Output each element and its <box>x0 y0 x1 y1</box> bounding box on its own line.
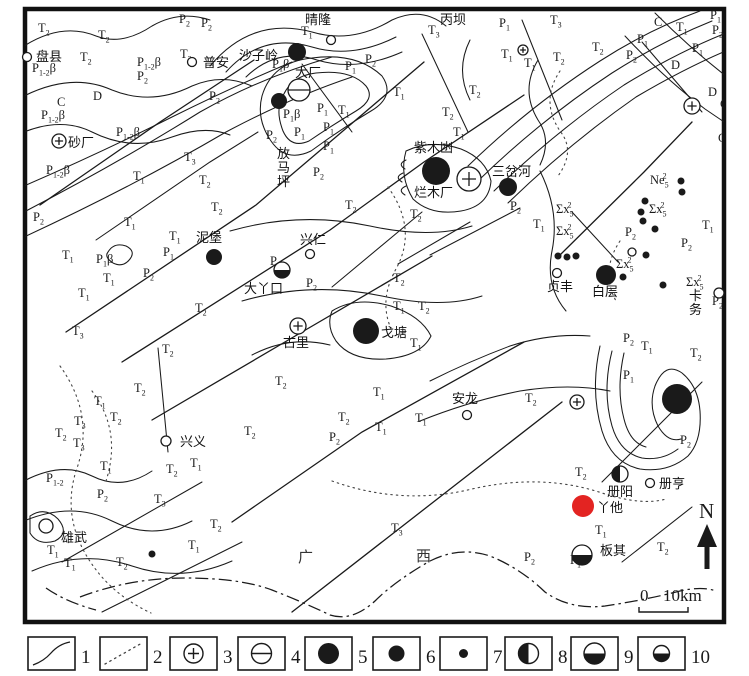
legend-number: 6 <box>426 647 436 668</box>
place-label: 盘县 <box>36 49 62 65</box>
place-label: 丙坝 <box>440 13 466 28</box>
map-canvas: T2T2P2P2T2T2P1-2βP1-2βP2CDP2P1-2βP1-2βT3… <box>0 0 749 676</box>
place-label: 兴仁 <box>300 233 326 248</box>
place-label: 泥堡 <box>196 230 222 246</box>
map-legend: 12345678910 <box>28 637 710 670</box>
town-marker <box>39 519 53 533</box>
place-label: 大丫口 <box>244 282 283 297</box>
gold-deposit-dot <box>679 189 686 196</box>
town-marker <box>327 36 336 45</box>
legend-number: 5 <box>358 647 368 668</box>
place-label: 普安 <box>203 56 229 71</box>
scale-distance-label: 10km <box>663 586 702 605</box>
legend-number: 10 <box>691 647 710 668</box>
geological-map-figure: T2T2P2P2T2T2P1-2βP1-2βP2CDP2P1-2βP1-2βT3… <box>0 0 749 676</box>
province-label-guangxi-guang: 广 <box>298 548 313 566</box>
gold-deposit-dot <box>564 254 571 261</box>
gold-deposit-dot <box>288 43 306 61</box>
deposit-half-left-circle <box>612 466 628 482</box>
open-circle-marker <box>628 248 636 256</box>
mine-symbol-circle-plus <box>52 134 66 148</box>
gold-deposit-dot <box>643 252 650 259</box>
deposit-half-bottom-circle <box>274 262 290 278</box>
strat-unit-label: C <box>654 15 662 29</box>
strat-unit-label: D <box>93 89 102 103</box>
town-marker <box>463 411 472 420</box>
place-label: 戈塘 <box>381 325 407 341</box>
legend-item-9: 9 <box>571 637 634 670</box>
place-label: 大厂 <box>295 66 321 81</box>
strat-unit-label: Σx52 <box>649 201 667 219</box>
mine-symbol-circle-plus <box>290 318 306 334</box>
legend-item-5: 5 <box>305 637 368 670</box>
strat-unit-label: Σx52 <box>556 201 574 219</box>
legend-item-2: 2 <box>100 637 163 670</box>
legend-item-3: 3 <box>170 637 233 670</box>
town-marker <box>188 58 197 67</box>
place-label: 册亨 <box>659 476 685 492</box>
town-marker <box>646 479 655 488</box>
mine-symbol-circle-plus <box>570 395 584 409</box>
place-label: 雄武 <box>61 531 87 546</box>
legend-number: 1 <box>81 647 91 668</box>
town-marker <box>553 269 562 278</box>
place-label: 紫木凼 <box>414 141 453 156</box>
place-label: 卡务 <box>689 289 702 318</box>
legend-item-10: 10 <box>638 637 710 670</box>
legend-item-7: 7 <box>440 637 503 670</box>
place-label: 古里 <box>283 336 309 351</box>
place-label: 烂木厂 <box>414 186 453 201</box>
gold-deposit-dot <box>662 384 692 414</box>
gold-deposit-dot <box>652 226 659 233</box>
gold-deposit-dot <box>660 282 667 289</box>
gold-deposit-dot <box>555 253 562 260</box>
strat-unit-label: D <box>708 85 717 99</box>
north-arrow-shaft <box>705 547 710 569</box>
place-label: 贞丰 <box>547 280 573 295</box>
legend-number: 7 <box>493 647 503 668</box>
legend-number: 4 <box>291 647 301 668</box>
gold-deposit-dot <box>638 209 645 216</box>
legend-number: 9 <box>624 647 634 668</box>
place-label: 晴隆 <box>305 13 331 28</box>
strat-unit-label: Σx52 <box>556 223 574 241</box>
legend-number: 2 <box>153 647 163 668</box>
strat-unit-label: C <box>57 95 65 109</box>
legend-symbol-dot-small <box>459 649 468 658</box>
gold-deposit-dot <box>353 318 379 344</box>
gold-deposit-dot <box>640 218 647 225</box>
place-label: 放马坪 <box>277 147 290 190</box>
town-marker <box>23 53 32 62</box>
gold-deposit-dot <box>149 551 156 558</box>
gold-deposit-dot <box>499 178 517 196</box>
mine-symbol-circle-plus <box>457 167 481 191</box>
gold-deposit-dot <box>422 157 450 185</box>
place-label: 三岔河 <box>492 165 531 180</box>
province-label-guangxi-xi: 西 <box>416 547 431 565</box>
strat-unit-label: D <box>671 58 680 72</box>
legend-item-1: 1 <box>28 637 91 670</box>
mine-symbol-circle-bar <box>288 79 310 101</box>
legend-number: 8 <box>558 647 568 668</box>
scale-zero-label: 0 <box>640 586 649 605</box>
mine-symbol-circle-plus <box>684 98 700 114</box>
legend-symbol-dot-medium <box>389 646 405 662</box>
mine-symbol-circle-plus <box>518 45 528 55</box>
legend-item-4: 4 <box>238 637 301 670</box>
gold-deposit-dot <box>596 265 616 285</box>
gold-deposit-dot <box>642 198 649 205</box>
legend-number: 3 <box>223 647 233 668</box>
place-label: 丫他 <box>597 501 623 516</box>
place-label: 沙子岭 <box>239 49 278 64</box>
place-label: 白层 <box>592 284 618 300</box>
open-circle-marker <box>714 288 724 298</box>
place-label: 安龙 <box>452 392 478 407</box>
place-label: 兴义 <box>180 435 206 450</box>
deposit-half-bottom-circle <box>572 545 592 565</box>
north-label: N <box>699 499 714 523</box>
place-label: 册阳 <box>607 485 633 500</box>
town-marker <box>161 436 171 446</box>
place-label: 砂厂 <box>68 136 94 151</box>
legend-symbol-dot-large <box>318 643 339 664</box>
gold-deposit-dot <box>620 274 627 281</box>
gold-deposit-dot <box>678 178 685 185</box>
gold-deposit-dot <box>271 93 287 109</box>
red-deposit-dot <box>572 495 594 517</box>
legend-box <box>100 637 147 670</box>
gold-deposit-dot <box>206 249 222 265</box>
strat-unit-label: Σx52 <box>616 256 634 274</box>
town-marker <box>306 250 315 259</box>
map-frame <box>25 9 724 622</box>
legend-item-6: 6 <box>373 637 436 670</box>
place-label: 板其 <box>600 544 626 559</box>
gold-deposit-dot <box>573 253 580 260</box>
legend-item-8: 8 <box>505 637 568 670</box>
strat-unit-label: Ne52 <box>650 172 669 190</box>
